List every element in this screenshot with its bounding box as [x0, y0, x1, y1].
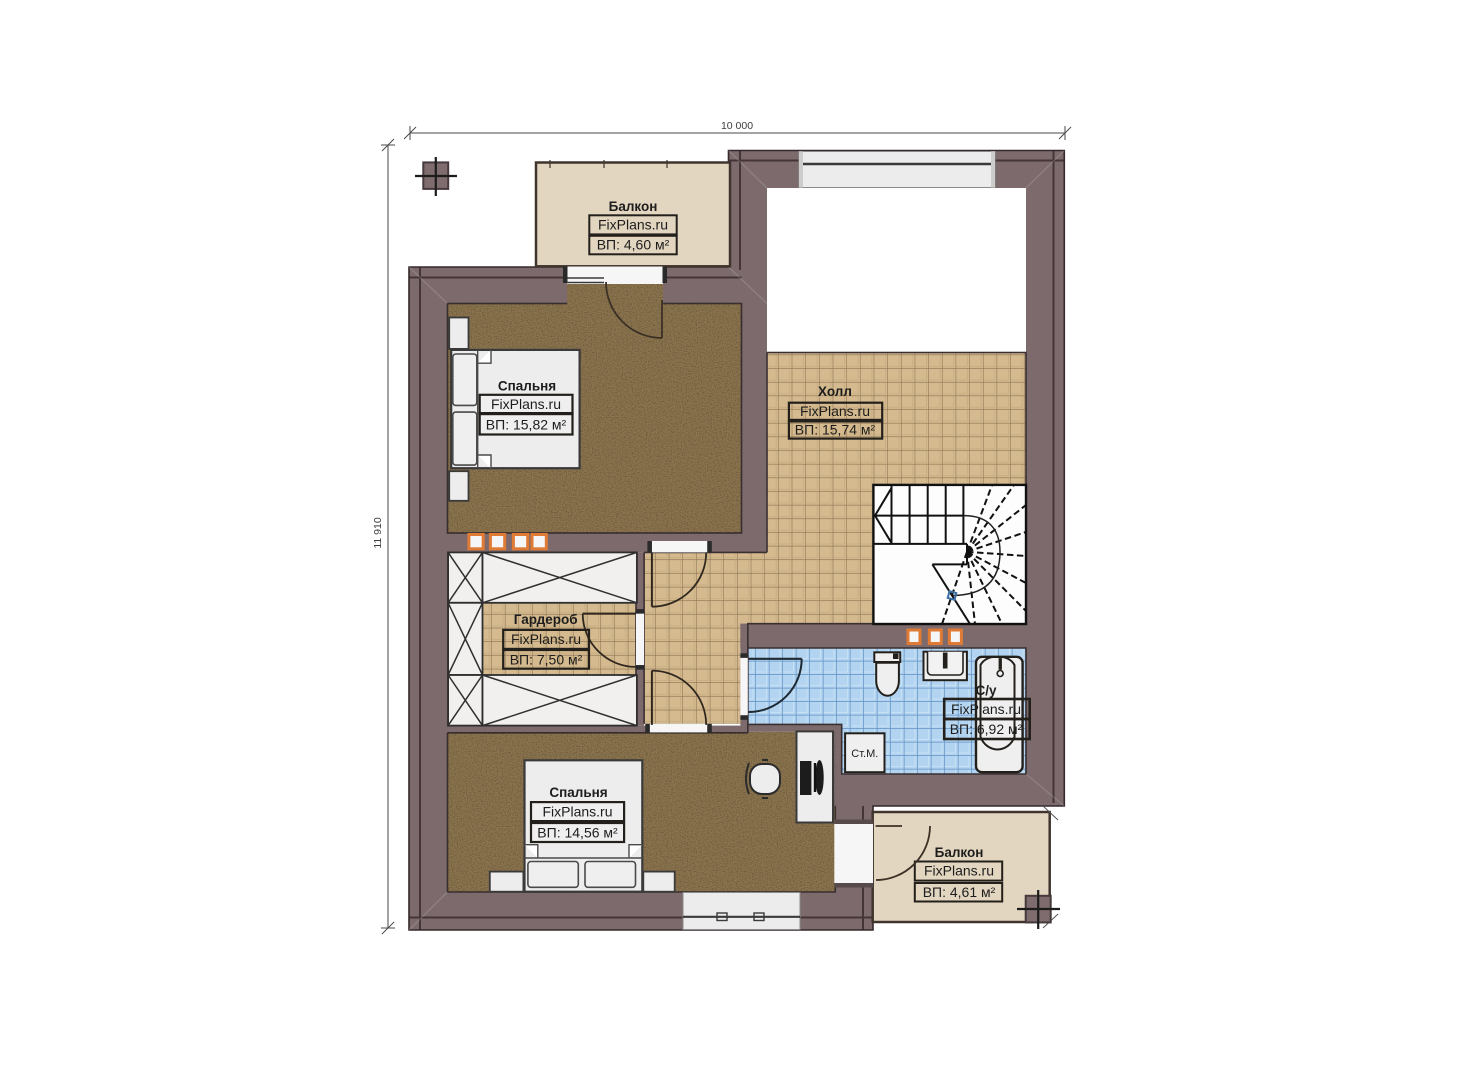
svg-text:FixPlans.ru: FixPlans.ru — [800, 403, 870, 419]
svg-text:Спальня: Спальня — [549, 785, 607, 800]
svg-text:ВП: 7,50 м²: ВП: 7,50 м² — [510, 651, 583, 667]
svg-text:Спальня: Спальня — [498, 379, 556, 394]
svg-text:FixPlans.ru: FixPlans.ru — [598, 217, 668, 233]
svg-text:Гардероб: Гардероб — [514, 612, 578, 627]
svg-text:Балкон: Балкон — [935, 845, 984, 860]
svg-text:FixPlans.ru: FixPlans.ru — [924, 863, 994, 879]
svg-text:ВП: 15,82 м²: ВП: 15,82 м² — [486, 417, 567, 433]
svg-text:Ст.М.: Ст.М. — [851, 748, 878, 760]
svg-text:ВП: 4,61 м²: ВП: 4,61 м² — [923, 884, 996, 900]
svg-text:ВП: 6,92 м²: ВП: 6,92 м² — [950, 721, 1023, 737]
svg-text:ВП: 15,74 м²: ВП: 15,74 м² — [795, 422, 876, 438]
svg-text:Балкон: Балкон — [609, 199, 658, 214]
svg-text:11 910: 11 910 — [372, 517, 384, 548]
svg-text:С/у: С/у — [975, 683, 997, 698]
svg-text:Холл: Холл — [818, 384, 852, 399]
svg-text:ВП: 14,56 м²: ВП: 14,56 м² — [537, 825, 618, 841]
svg-text:FixPlans.ru: FixPlans.ru — [542, 804, 612, 820]
svg-text:ВП: 4,60 м²: ВП: 4,60 м² — [597, 237, 670, 253]
svg-text:10 000: 10 000 — [721, 120, 753, 132]
svg-text:FixPlans.ru: FixPlans.ru — [491, 396, 561, 412]
svg-text:FixPlans.ru: FixPlans.ru — [951, 701, 1021, 717]
svg-text:FixPlans.ru: FixPlans.ru — [511, 631, 581, 647]
